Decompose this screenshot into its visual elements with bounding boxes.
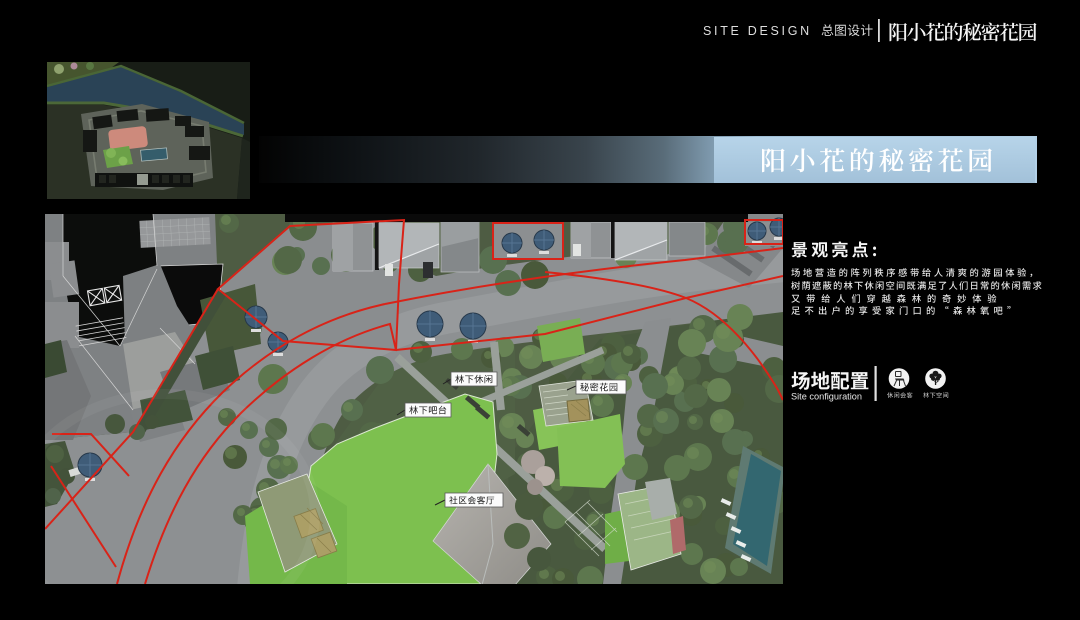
svg-text:Site configuration: Site configuration: [791, 392, 862, 402]
